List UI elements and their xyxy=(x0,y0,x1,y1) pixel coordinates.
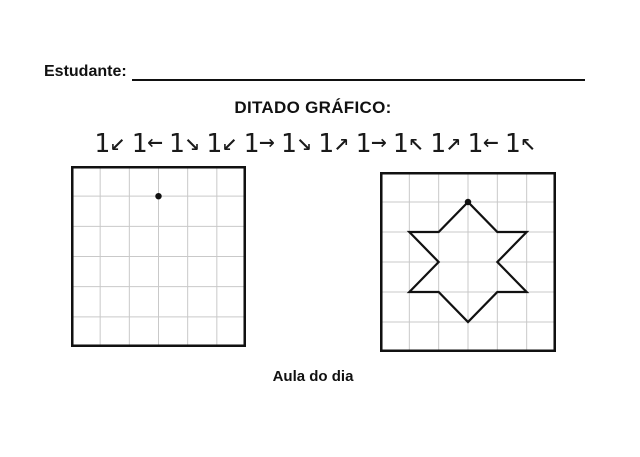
worksheet-page: Estudante: DITADO GRÁFICO: 1↙1←1↘1↙1→1↘1… xyxy=(0,0,640,457)
arrow-down-right-icon: ↘ xyxy=(296,125,312,159)
arrow-down-left-icon: ↙ xyxy=(110,125,126,159)
arrow-up-right-icon: ↗ xyxy=(334,125,350,159)
step-count: 1 xyxy=(505,127,521,161)
arrow-right-icon: → xyxy=(259,125,275,159)
step-count: 1 xyxy=(430,127,446,161)
dictation-step: 1← xyxy=(131,127,162,161)
arrow-up-left-icon: ↖ xyxy=(520,125,536,159)
student-label: Estudante: xyxy=(44,63,127,81)
step-count: 1 xyxy=(131,127,147,161)
dictation-step: 1→ xyxy=(243,127,274,161)
step-count: 1 xyxy=(467,127,483,161)
step-count: 1 xyxy=(281,127,297,161)
footer-label: Aula do dia xyxy=(0,368,626,385)
arrow-down-left-icon: ↙ xyxy=(222,125,238,159)
dictation-step: 1↘ xyxy=(281,127,312,161)
practice-grid xyxy=(71,166,246,347)
start-dot xyxy=(155,193,161,199)
worksheet-title: DITADO GRÁFICO: xyxy=(0,98,626,118)
step-count: 1 xyxy=(393,127,409,161)
step-count: 1 xyxy=(94,127,110,161)
arrow-up-right-icon: ↗ xyxy=(446,125,462,159)
arrow-left-icon: ← xyxy=(483,125,499,159)
dictation-step: 1→ xyxy=(355,127,386,161)
step-count: 1 xyxy=(206,127,222,161)
dictation-step: 1↙ xyxy=(94,127,125,161)
start-dot xyxy=(465,199,471,205)
step-count: 1 xyxy=(355,127,371,161)
dictation-sequence: 1↙1←1↘1↙1→1↘1↗1→1↖1↗1←1↖ xyxy=(0,127,630,161)
dictation-step: 1↖ xyxy=(393,127,424,161)
arrow-right-icon: → xyxy=(371,125,387,159)
step-count: 1 xyxy=(243,127,259,161)
answer-grid xyxy=(380,172,556,352)
dictation-step: 1↗ xyxy=(318,127,349,161)
step-count: 1 xyxy=(169,127,185,161)
dictation-step: 1↖ xyxy=(505,127,536,161)
arrow-up-left-icon: ↖ xyxy=(408,125,424,159)
dictation-step: 1↙ xyxy=(206,127,237,161)
dictation-step: 1↘ xyxy=(169,127,200,161)
student-name-row: Estudante: xyxy=(44,60,585,81)
dictation-step: 1↗ xyxy=(430,127,461,161)
arrow-down-right-icon: ↘ xyxy=(184,125,200,159)
arrow-left-icon: ← xyxy=(147,125,163,159)
student-name-line xyxy=(132,60,585,81)
dictation-step: 1← xyxy=(467,127,498,161)
step-count: 1 xyxy=(318,127,334,161)
